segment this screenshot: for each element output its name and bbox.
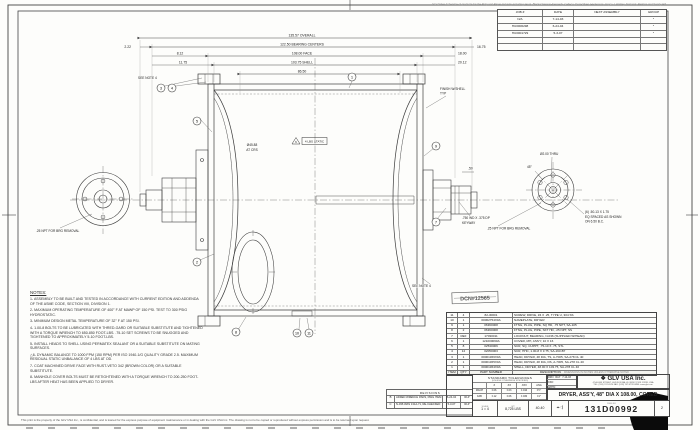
balloon-7: 7 [435, 220, 437, 224]
job-col-header: JOB # [498, 10, 543, 16]
job-row-empty [498, 43, 666, 50]
job-next-assembly [574, 17, 641, 23]
job-number: N/A [498, 17, 543, 23]
dim-shaft: .50 [468, 167, 473, 171]
job-row-empty [498, 37, 666, 44]
job-number: HU0006298 [498, 24, 543, 30]
label-bolts-3: ON 6.50 B.C. [585, 220, 604, 224]
job-next-assembly [574, 31, 641, 37]
job-date: 7-14-03 [543, 17, 574, 23]
label-see-note-4: SEE NOTE 4 [138, 76, 157, 80]
label-keyway-2: KEYWAY [462, 221, 476, 225]
balloon-3: 3 [160, 86, 162, 90]
job-number: HU0001729 [498, 31, 543, 37]
title-block-spacer [446, 374, 474, 417]
label-thru-hole: Ø2.00 THRU [540, 152, 559, 156]
weight-cell: WT 8,725 LBS [498, 401, 529, 416]
rev-description: ADDED WRENCH PADS, DWG ITEM 13 WAS 11 [395, 396, 443, 402]
note-item: 5- INSTALL HEADS TO SHELL USING PERMATEX… [30, 342, 204, 351]
dim-right1: 16.75 [477, 45, 486, 49]
notes-title: NOTES: [30, 290, 204, 296]
rev-letter: B [387, 396, 395, 402]
dim-left2: 8.12 [177, 52, 184, 56]
job-group: * [641, 17, 666, 23]
drawing-sheet: 135.57 OVERALL 122.50 BEARING CENTERS 10… [0, 0, 700, 430]
job-date: 5-3-07 [543, 31, 574, 37]
rev-letter: C [387, 403, 395, 409]
balloon-2: 2 [196, 260, 198, 264]
dimension-lines [140, 38, 474, 172]
dim-right2: 18.00 [458, 52, 467, 56]
dim-left3: 11.75 [179, 61, 187, 65]
dcn-stamp: DCN#12565 [452, 291, 498, 304]
note-item: 1- ASSEMBLY TO BE BUILT AND TESTED IN AC… [30, 297, 204, 306]
rev-cell: 2 [655, 401, 669, 416]
job-row: N/A 7-14-03 * [498, 16, 666, 23]
note-item: △6- DYNAMIC BALANCE TO 1000 FPM (150 RPM… [30, 353, 204, 362]
rev-description: N-036 WAS 131A-71, RE-CHECKED [395, 403, 443, 409]
tolerances-grid: .X .XX.XXX ANG MACH±.06 ±.03±.010 ±½° FA… [473, 382, 547, 400]
job-row: HU0006298 6-24-04 * [498, 23, 666, 30]
note-item: 7- COAT MACHINED DRIVE FACE WITH RUST-VE… [30, 364, 204, 373]
balloon-11: 11 [307, 331, 311, 335]
code-cell: 40-40 [529, 401, 552, 416]
balloon-4: 4 [171, 86, 173, 90]
third-angle-projection-icon: ⌖◁ [552, 401, 569, 416]
dim-cored: 86.50 [298, 70, 307, 74]
label-keyway-1: .750 WD X .375 DP [462, 216, 490, 220]
company-address-2: TEL: (518) 747-0524 FAX: (518) 747-0793 … [577, 384, 669, 386]
label-diameter-1: Ø45.88 [247, 143, 258, 147]
title-block-bottom-row: SCALE 1 = 4 WT 8,725 LBS 40-40 ⌖◁ DWG NO… [472, 400, 670, 417]
job-table: JOB # DATE NEXT ASSEMBLY GROUP N/A 7-14-… [497, 9, 667, 51]
dim-overall: 135.57 OVERALL [289, 34, 316, 38]
tolerance-block: STANDARD TOLERANCES (UNLESS OTHERWISE SP… [472, 374, 548, 402]
annotation-texts: SEE NOTE 4 SEE NOTE 4 FINISH W/SHELL TYP… [36, 76, 622, 288]
note-item: 4- 1.00-8 BOLTS TO BE LUBRICATED WITH TH… [30, 326, 204, 340]
group-col-header: GROUP [641, 10, 666, 16]
header-microprint: GLV Sales & Service of products for the … [148, 2, 666, 6]
dim-right3: 20.12 [458, 61, 467, 65]
label-finish-1: FINISH W/SHELL [440, 87, 466, 91]
notes-block: NOTES: 1- ASSEMBLY TO BE BUILT AND TESTE… [30, 290, 204, 386]
label-diameter-2: AT CRS [246, 148, 257, 152]
flag-6: 6 [295, 140, 297, 144]
balloon-8: 8 [235, 330, 237, 334]
static-balance-box: 4 LBS STATIC [305, 140, 325, 144]
label-brg-removal-right: .25 NPT FOR BRG REMOVAL [487, 227, 531, 231]
note-item: 2- MAXIMUM OPERATING TEMPERATURE OF 400°… [30, 308, 204, 317]
balloon-10: 10 [295, 331, 299, 335]
balloon-9: 9 [435, 144, 437, 148]
job-group: * [641, 24, 666, 30]
dcn-stamp-text: DCN#12565 [460, 295, 490, 302]
label-angle: 45° [527, 165, 533, 169]
scale-cell: SCALE 1 = 4 [473, 401, 498, 416]
job-row: HU0001729 5-3-07 * [498, 30, 666, 37]
drawing-number-cell: DWG NO 131D00992 [569, 401, 655, 416]
label-bolts-1: (6) .50-13 X 1.75 [585, 210, 609, 214]
footer-disclaimer: This print is the property of the GLV US… [21, 418, 621, 422]
dim-shell: 103.75 SHELL [291, 61, 313, 65]
job-table-header: JOB # DATE NEXT ASSEMBLY GROUP [498, 10, 666, 16]
job-group: * [641, 31, 666, 37]
label-brg-removal-left: .25 NPT FOR BRG REMOVAL [36, 229, 80, 233]
dim-left1: 2.22 [124, 45, 131, 49]
label-bolts-2: EQ SPACED AS SHOWN [585, 215, 622, 219]
company-logo-icon: ❖ [600, 376, 605, 382]
note-item: 8- MANHOLE COVER BOLTS MUST BE RETIGHTEN… [30, 375, 204, 384]
next-assembly-col-header: NEXT ASSEMBLY [574, 10, 641, 16]
date-col-header: DATE [543, 10, 574, 16]
balance-flag-note: 6 4 LBS STATIC [292, 138, 327, 145]
label-see-note-4b: SEE NOTE 4 [412, 284, 431, 288]
job-next-assembly [574, 24, 641, 30]
balloon-5: 5 [196, 119, 198, 123]
note-item: 3- MINIMUM DESIGN METAL TEMPERATURE OF 3… [30, 319, 204, 324]
manhole-cover-detail [231, 230, 275, 314]
label-finish-2: TYP [440, 92, 446, 96]
job-date: 6-24-04 [543, 24, 574, 30]
bom-table: 114 82-30001SCREW, DRIVE, #4 X .25, TYPE… [446, 312, 657, 376]
dim-face: 108.00 FACE [292, 52, 313, 56]
dim-bearing-centers: 122.50 BEARING CENTERS [280, 43, 324, 47]
balloon-1: 1 [351, 75, 353, 79]
drawing-number: 131D00992 [585, 405, 638, 414]
